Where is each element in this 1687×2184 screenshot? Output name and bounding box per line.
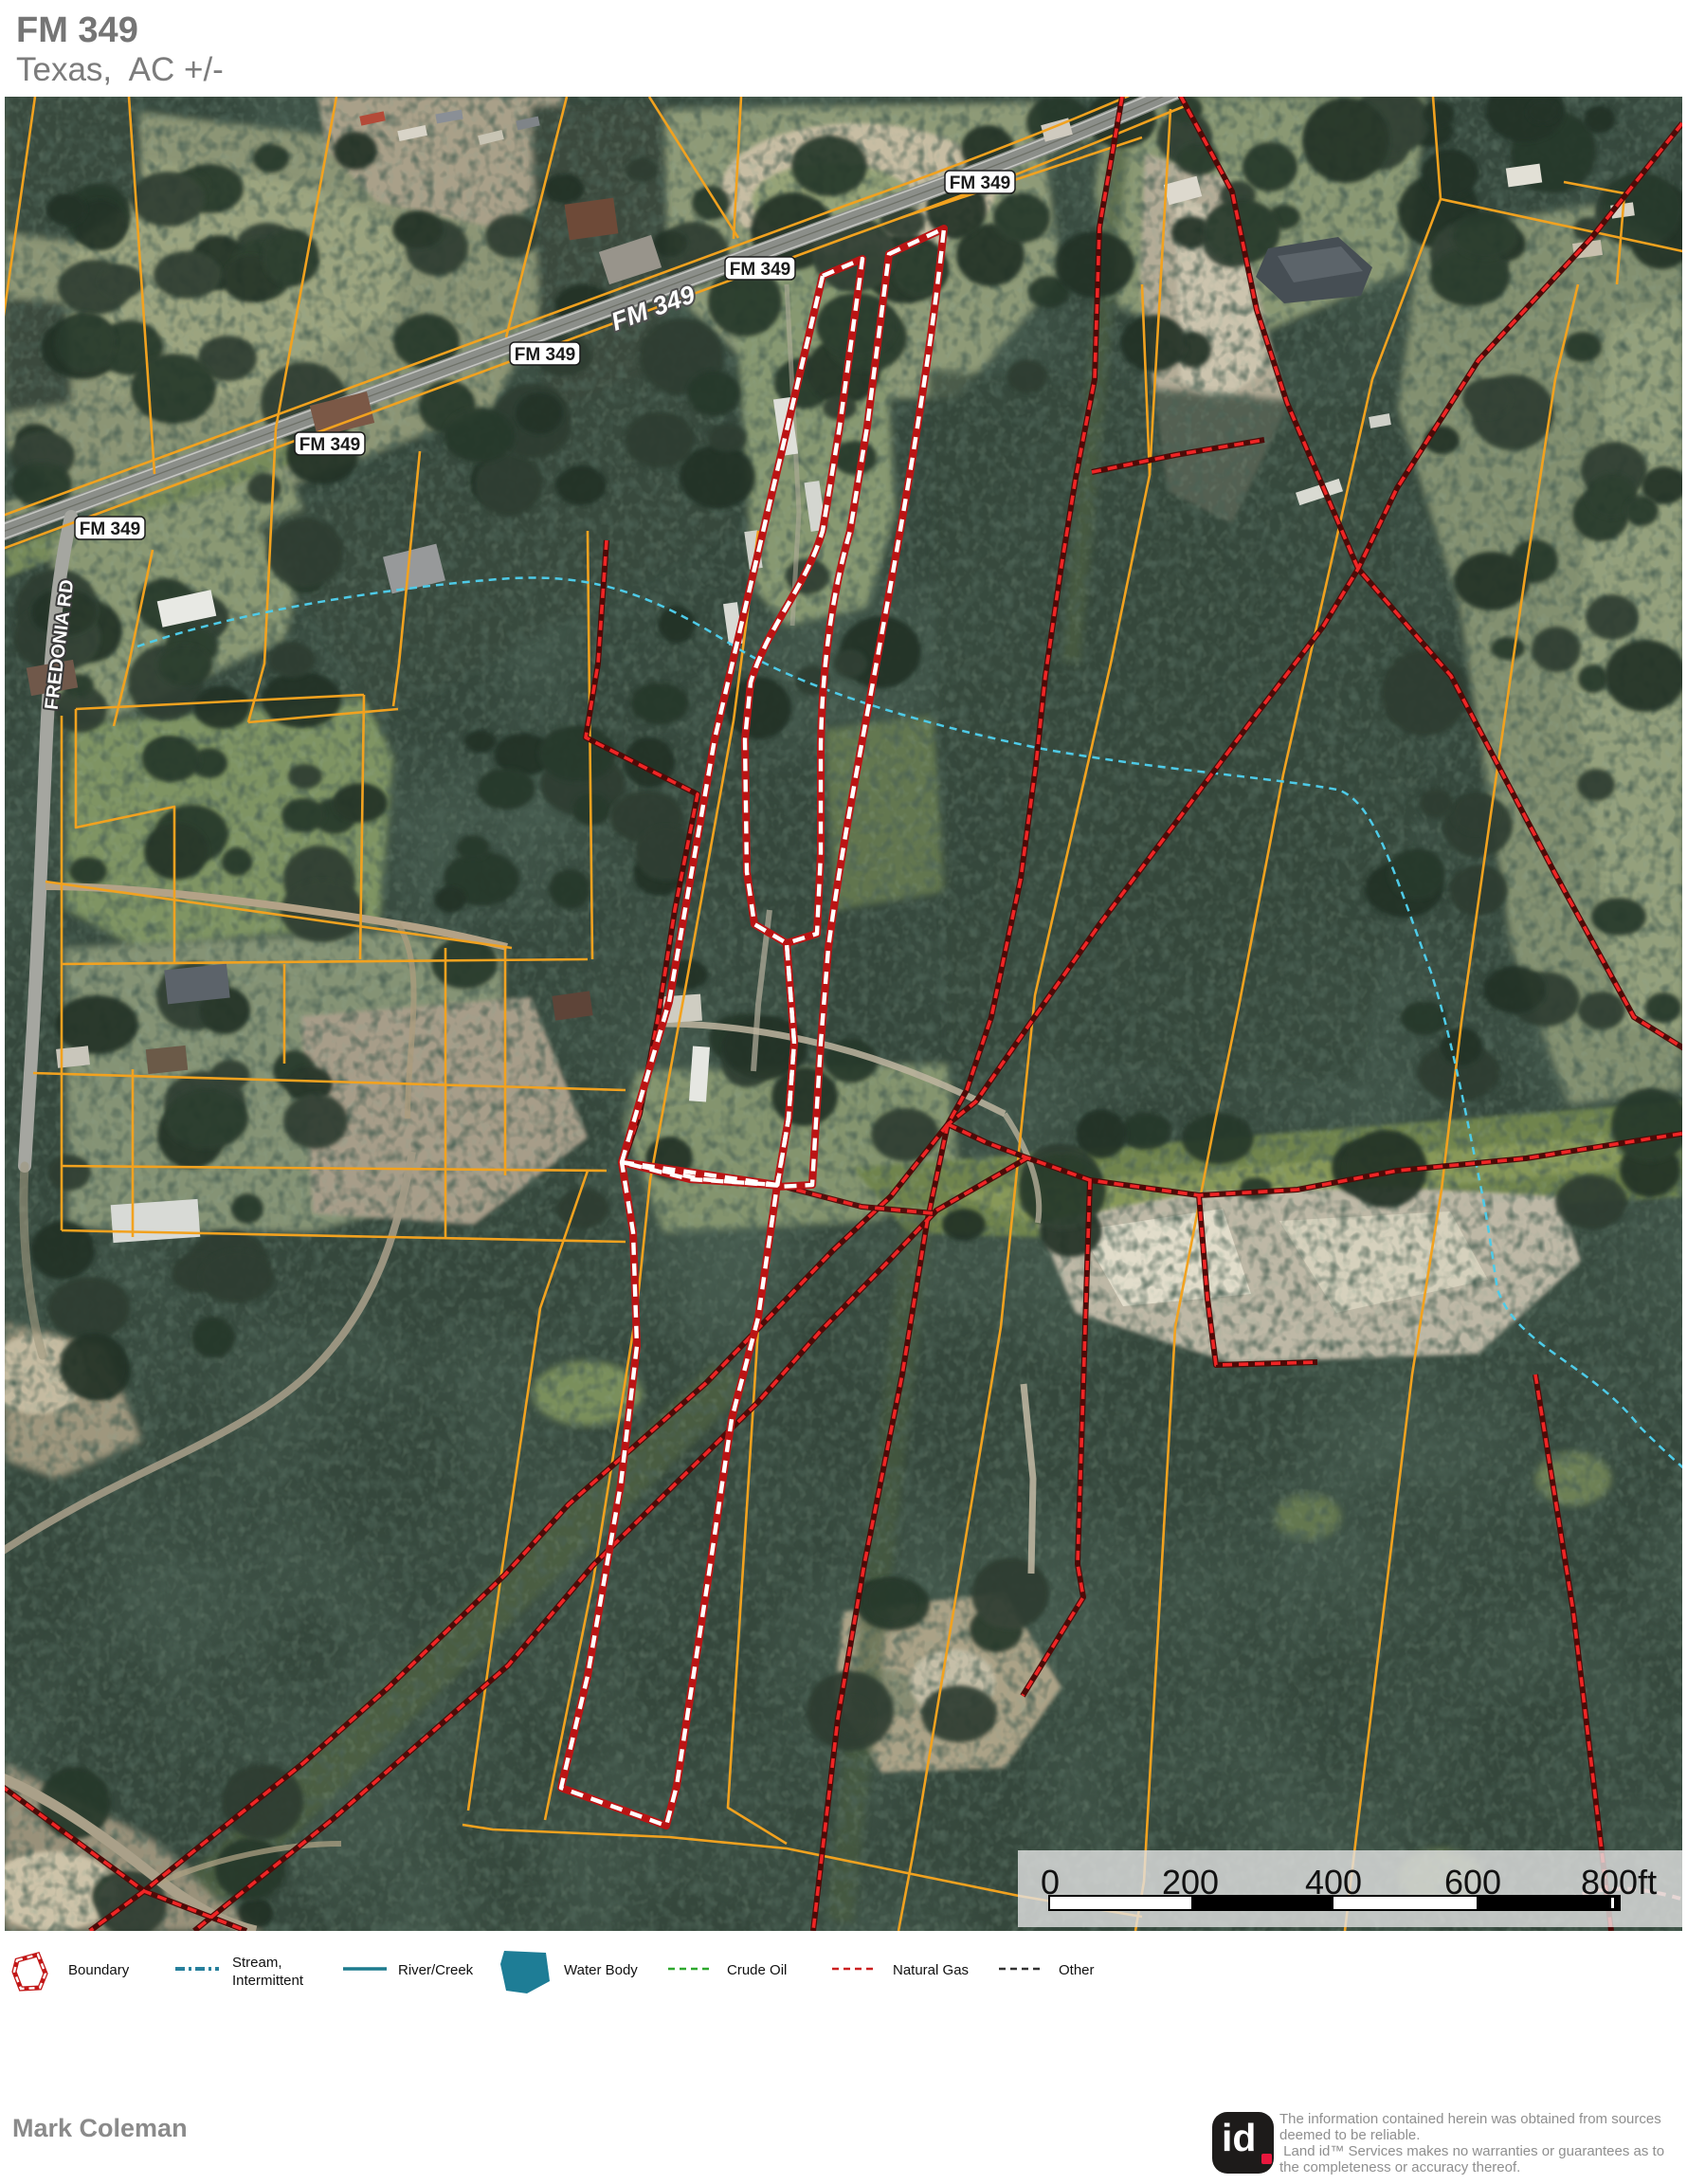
svg-text:River/Creek: River/Creek <box>398 1962 474 1978</box>
svg-text:FM 349: FM 349 <box>950 173 1010 193</box>
svg-text:FM 349: FM 349 <box>730 260 790 280</box>
svg-text:Intermittent: Intermittent <box>232 1973 304 1989</box>
svg-text:Natural Gas: Natural Gas <box>893 1962 969 1978</box>
svg-text:Other: Other <box>1059 1962 1095 1978</box>
svg-text:FM 349: FM 349 <box>515 345 575 365</box>
svg-text:Boundary: Boundary <box>68 1962 130 1978</box>
svg-text:Stream,: Stream, <box>232 1955 282 1971</box>
svg-text:Crude Oil: Crude Oil <box>727 1962 787 1978</box>
svg-text:FM 349: FM 349 <box>299 435 360 455</box>
svg-text:Water Body: Water Body <box>564 1962 638 1978</box>
svg-text:FM 349: FM 349 <box>80 519 140 539</box>
